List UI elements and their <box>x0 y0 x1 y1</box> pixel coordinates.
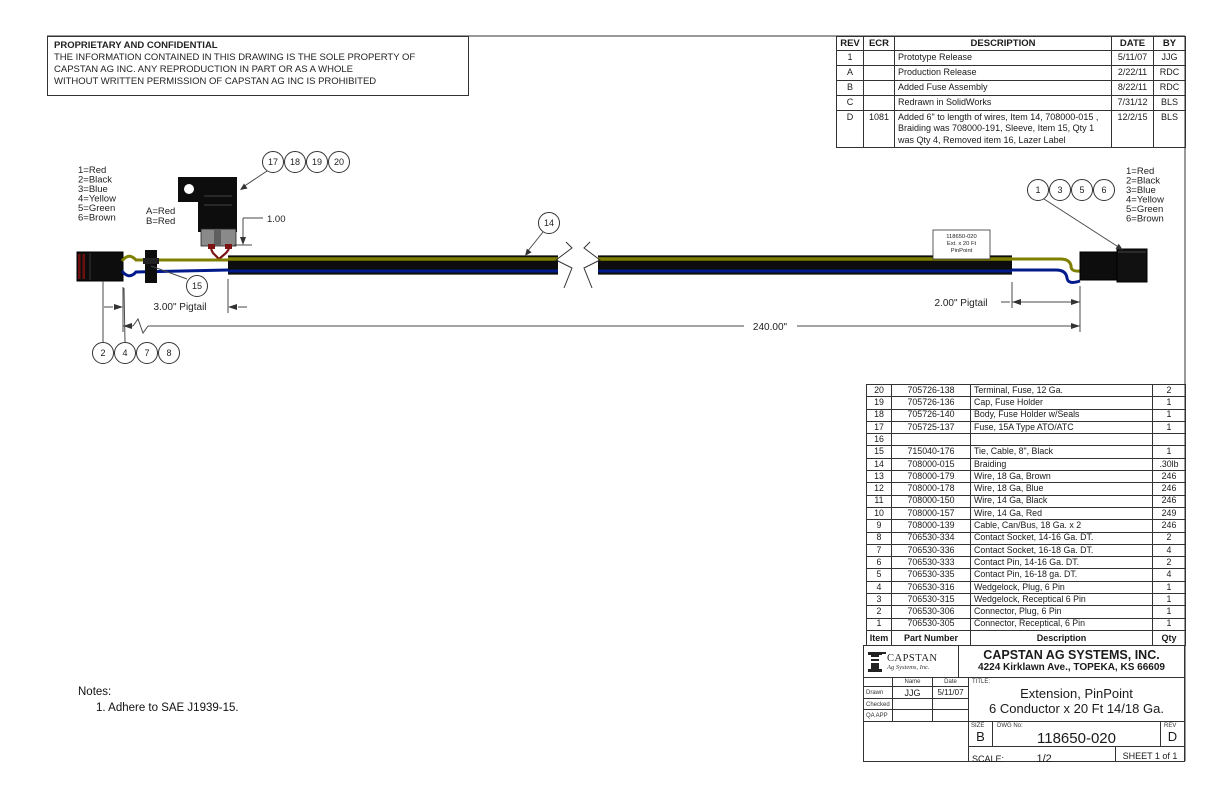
revision-table: REV ECR DESCRIPTION DATE BY 1Prototype R… <box>836 36 1186 148</box>
dwg-cell: DWG No: 118650-020 <box>993 722 1161 747</box>
col-part-number: Part Number <box>892 630 971 646</box>
break-marks <box>556 242 600 288</box>
svg-text:240.00": 240.00" <box>753 322 788 333</box>
sig-corner <box>864 678 893 687</box>
right-wire-legend: 1=Red 2=Black 3=Blue 4=Yellow 5=Green 6=… <box>1126 166 1164 225</box>
table-row: 15715040-176Tie, Cable, 8", Black1 <box>867 446 1186 458</box>
balloon-3: 3 <box>1057 185 1062 195</box>
table-row: 7706530-336Contact Socket, 16-18 Ga. DT.… <box>867 544 1186 556</box>
dwg-number: 118650-020 <box>993 730 1160 747</box>
capstan-tower-icon <box>867 651 887 673</box>
svg-text:PinPoint: PinPoint <box>951 248 973 254</box>
title-line1: Extension, PinPoint <box>969 686 1184 701</box>
col-date: DATE <box>1112 37 1154 51</box>
size-label: SIZE <box>969 722 992 729</box>
table-row: 11708000-150Wire, 14 Ga, Black246 <box>867 495 1186 507</box>
drawn-name: JJG <box>893 687 933 699</box>
dim-right-pigtail: 2.00" Pigtail <box>934 282 1080 332</box>
drawn-date: 5/11/07 <box>933 687 969 699</box>
revision-header-row: REV ECR DESCRIPTION DATE BY <box>837 37 1186 51</box>
drawing-title: TITLE: Extension, PinPoint 6 Conductor x… <box>969 678 1184 722</box>
name-label: Name <box>893 678 933 687</box>
col-by: BY <box>1154 37 1186 51</box>
balloon-5: 5 <box>1079 185 1084 195</box>
proprietary-line: THE INFORMATION CONTAINED IN THIS DRAWIN… <box>54 52 462 64</box>
sheet-cell: SHEET 1 of 1 <box>1116 747 1184 762</box>
table-row: BAdded Fuse Assembly8/22/11RDC <box>837 81 1186 96</box>
notes-block: Notes: 1. Adhere to SAE J1939-15. <box>78 684 239 716</box>
title-block: CAPSTAN Ag Systems, Inc. CAPSTAN AG SYST… <box>863 645 1185 762</box>
balloon-7: 7 <box>144 348 149 358</box>
date-label: Date <box>933 678 969 687</box>
table-row: CRedrawn in SolidWorks7/31/12BLS <box>837 96 1186 111</box>
table-row: 12708000-178Wire, 18 Ga, Blue246 <box>867 483 1186 495</box>
qa-name <box>893 710 933 722</box>
proprietary-line: CAPSTAN AG INC. ANY REPRODUCTION IN PART… <box>54 64 462 76</box>
balloon-2: 2 <box>100 348 105 358</box>
balloon-8: 8 <box>166 348 171 358</box>
table-row: 4706530-316Wedgelock, Plug, 6 Pin1 <box>867 581 1186 593</box>
dim-left-pigtail: 3.00" Pigtail <box>104 279 247 332</box>
table-row: 20705726-138Terminal, Fuse, 12 Ga.2 <box>867 385 1186 397</box>
balloon-20: 20 <box>334 157 344 167</box>
checked-name <box>893 699 933 710</box>
col-description: Description <box>971 630 1153 646</box>
dim-fuse: 1.00 <box>234 214 286 245</box>
svg-text:6=Brown: 6=Brown <box>78 213 116 224</box>
right-pigtail-wires <box>1012 259 1080 282</box>
table-row: 9708000-139Cable, Can/Bus, 18 Ga. x 2246 <box>867 520 1186 532</box>
svg-text:2.00" Pigtail: 2.00" Pigtail <box>934 298 987 309</box>
balloon-17: 17 <box>268 157 278 167</box>
rev-cell: REV D <box>1161 722 1184 747</box>
svg-text:Ext. x 20 Ft: Ext. x 20 Ft <box>947 241 977 247</box>
title-label: TITLE: <box>972 679 990 685</box>
proprietary-line: WITHOUT WRITTEN PERMISSION OF CAPSTAN AG… <box>54 76 462 88</box>
proprietary-note: PROPRIETARY AND CONFIDENTIAL THE INFORMA… <box>47 36 469 96</box>
company-logo: CAPSTAN Ag Systems, Inc. <box>864 646 959 678</box>
company-address: 4224 Kirklawn Ave., TOPEKA, KS 66609 <box>959 662 1184 673</box>
svg-text:118650-020: 118650-020 <box>946 234 977 240</box>
qa-label: QA APP <box>864 710 893 722</box>
balloon-1: 1 <box>1035 185 1040 195</box>
svg-text:6=Brown: 6=Brown <box>1126 214 1164 225</box>
drawing-sheet: 1=Red 2=Black 3=Blue 4=Yellow 5=Green 6=… <box>0 0 1224 792</box>
table-row: 8706530-334Contact Socket, 14-16 Ga. DT.… <box>867 532 1186 544</box>
company-name: CAPSTAN AG SYSTEMS, INC. <box>959 648 1184 662</box>
col-description: DESCRIPTION <box>895 37 1112 51</box>
size-value: B <box>969 729 992 744</box>
cable-label: 118650-020 Ext. x 20 Ft PinPoint <box>933 230 990 259</box>
scale-cell: SCALE: 1/2 <box>969 747 1116 762</box>
balloons-fuse: 17 18 19 20 <box>240 152 350 191</box>
braid-left <box>228 255 558 275</box>
svg-text:14: 14 <box>544 218 554 228</box>
notes-title: Notes: <box>78 684 239 700</box>
size-cell: SIZE B <box>969 722 993 747</box>
col-ecr: ECR <box>864 37 895 51</box>
fuse-assembly <box>178 177 237 259</box>
table-row: AProduction Release2/22/11RDC <box>837 66 1186 81</box>
balloon-braid: 14 <box>525 213 560 257</box>
left-connector <box>77 252 123 281</box>
proprietary-title: PROPRIETARY AND CONFIDENTIAL <box>54 40 462 52</box>
empty-cell <box>864 722 969 762</box>
left-pigtail-wires <box>122 256 228 276</box>
title-line2: 6 Conductor x 20 Ft 14/18 Ga. <box>969 701 1184 716</box>
table-row: 2706530-306Connector, Plug, 6 Pin1 <box>867 606 1186 618</box>
table-row: 1706530-305Connector, Receptical, 6 Pin1 <box>867 618 1186 630</box>
qa-date <box>933 710 969 722</box>
svg-text:3.00" Pigtail: 3.00" Pigtail <box>153 302 206 313</box>
company-info: CAPSTAN AG SYSTEMS, INC. 4224 Kirklawn A… <box>959 646 1184 678</box>
logo-subtitle: Ag Systems, Inc. <box>887 664 938 671</box>
table-row: 6706530-333Contact Pin, 14-16 Ga. DT.2 <box>867 557 1186 569</box>
table-row: 16 <box>867 434 1186 446</box>
rev-value: D <box>1161 729 1184 744</box>
table-row: 14708000-015Braiding.30lb <box>867 458 1186 470</box>
table-row: D1081Added 6" to length of wires, Item 1… <box>837 111 1186 148</box>
bom-table: 20705726-138Terminal, Fuse, 12 Ga.219705… <box>866 384 1186 646</box>
balloon-4: 4 <box>122 348 127 358</box>
checked-label: Checked <box>864 699 893 710</box>
table-row: 1Prototype Release5/11/07JJG <box>837 51 1186 66</box>
rev-label: REV <box>1161 722 1184 729</box>
col-item: Item <box>867 630 892 646</box>
svg-text:B=Red: B=Red <box>146 216 175 227</box>
col-qty: Qty <box>1153 630 1186 646</box>
left-wire-legend: 1=Red 2=Black 3=Blue 4=Yellow 5=Green 6=… <box>78 165 116 224</box>
col-rev: REV <box>837 37 864 51</box>
dwg-label: DWG No: <box>993 722 1160 729</box>
scale-label: SCALE: <box>972 754 1004 764</box>
bom-header-row: Item Part Number Description Qty <box>867 630 1186 646</box>
note-item: 1. Adhere to SAE J1939-15. <box>96 700 239 716</box>
table-row: 18705726-140Body, Fuse Holder w/Seals1 <box>867 409 1186 421</box>
balloon-18: 18 <box>290 157 300 167</box>
table-row: 19705726-136Cap, Fuse Holder1 <box>867 397 1186 409</box>
drawn-label: Drawn <box>864 687 893 699</box>
svg-text:1.00: 1.00 <box>267 214 286 225</box>
table-row: 10708000-157Wire, 14 Ga, Red249 <box>867 507 1186 519</box>
dim-overall: 240.00" <box>123 319 1080 333</box>
table-row: 13708000-179Wire, 18 Ga, Brown246 <box>867 471 1186 483</box>
logo-name: CAPSTAN <box>887 653 938 664</box>
table-row: 5706530-335Contact Pin, 16-18 ga. DT.4 <box>867 569 1186 581</box>
svg-text:15: 15 <box>192 281 202 291</box>
table-row: 3706530-315Wedgelock, Receptical 6 Pin1 <box>867 594 1186 606</box>
checked-date <box>933 699 969 710</box>
table-row: 17705725-137Fuse, 15A Type ATO/ATC1 <box>867 421 1186 433</box>
balloon-19: 19 <box>312 157 322 167</box>
scale-value: 1/2 <box>1036 753 1051 765</box>
balloon-6: 6 <box>1101 185 1106 195</box>
fuse-wire-legend: A=Red B=Red <box>146 206 175 227</box>
balloons-right: 1 3 5 6 <box>1028 180 1124 251</box>
right-connector <box>1080 249 1147 282</box>
